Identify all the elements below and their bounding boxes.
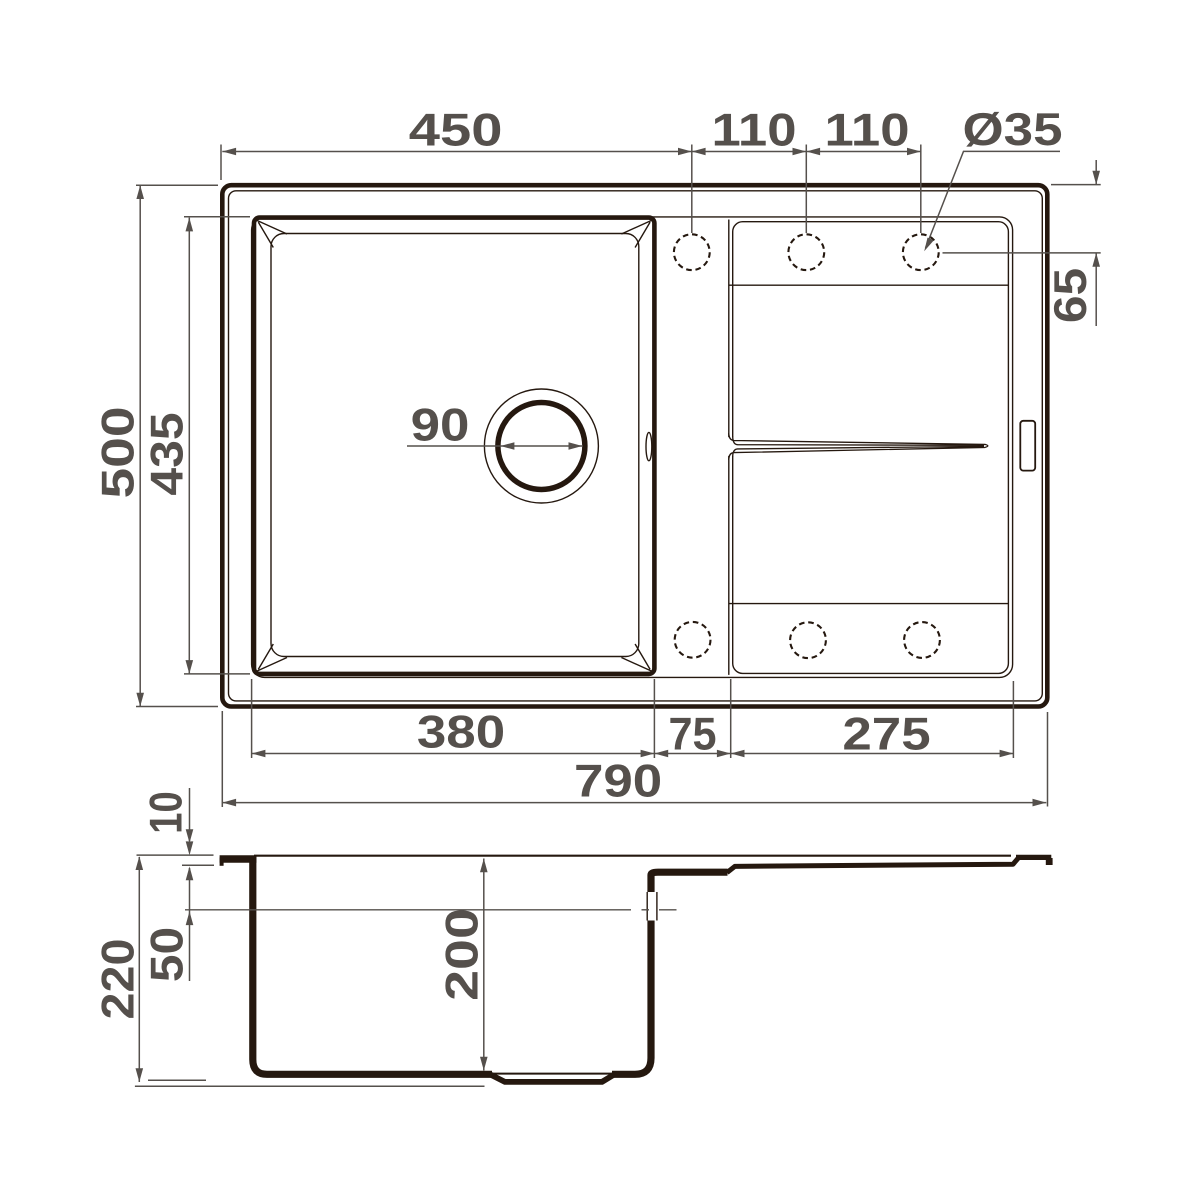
svg-text:435: 435 bbox=[141, 412, 193, 495]
svg-text:110: 110 bbox=[825, 103, 910, 155]
svg-text:90: 90 bbox=[411, 399, 470, 451]
svg-text:275: 275 bbox=[842, 708, 930, 760]
svg-text:500: 500 bbox=[91, 406, 143, 498]
svg-text:790: 790 bbox=[574, 755, 662, 807]
svg-text:220: 220 bbox=[92, 939, 144, 1020]
svg-text:200: 200 bbox=[436, 908, 488, 1001]
svg-text:65: 65 bbox=[1044, 268, 1096, 323]
svg-text:450: 450 bbox=[409, 103, 503, 155]
svg-text:Ø35: Ø35 bbox=[963, 103, 1063, 155]
svg-text:75: 75 bbox=[668, 708, 716, 760]
svg-text:110: 110 bbox=[712, 103, 797, 155]
svg-text:10: 10 bbox=[140, 791, 192, 833]
svg-text:50: 50 bbox=[141, 927, 193, 982]
svg-text:380: 380 bbox=[417, 706, 505, 758]
